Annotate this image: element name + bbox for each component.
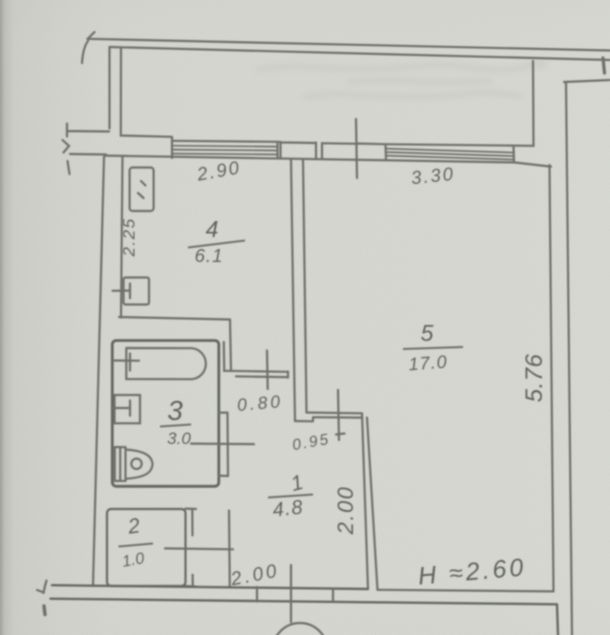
svg-text:5: 5	[421, 320, 434, 346]
svg-text:0.80: 0.80	[236, 391, 284, 415]
svg-text:4: 4	[206, 216, 219, 242]
svg-text:2.00: 2.00	[333, 486, 358, 536]
svg-text:3.0: 3.0	[167, 429, 191, 448]
svg-text:2.25: 2.25	[120, 217, 139, 257]
svg-text:17.0: 17.0	[408, 352, 448, 375]
svg-text:4.8: 4.8	[272, 496, 305, 521]
svg-text:6.1: 6.1	[195, 245, 224, 266]
svg-text:3: 3	[167, 395, 183, 426]
svg-text:5.76: 5.76	[521, 353, 548, 402]
